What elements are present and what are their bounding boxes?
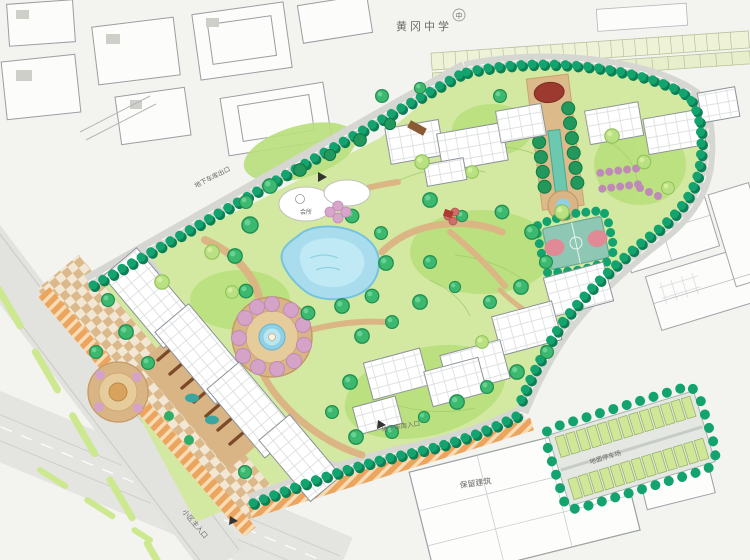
site-plan-image: 会所 <box>0 0 750 560</box>
site-plan-page: 会所 <box>0 0 750 560</box>
secondary-plaza <box>88 362 148 422</box>
school-badge: 中 <box>456 11 463 20</box>
garage-exit-label: 地下车库出口 <box>193 164 232 190</box>
clubhouse-label: 会所 <box>300 208 312 216</box>
school-label: 黄冈中学 <box>396 19 452 33</box>
flower-ring-plaza <box>232 297 313 378</box>
clubhouse-badge-circle <box>296 195 305 204</box>
